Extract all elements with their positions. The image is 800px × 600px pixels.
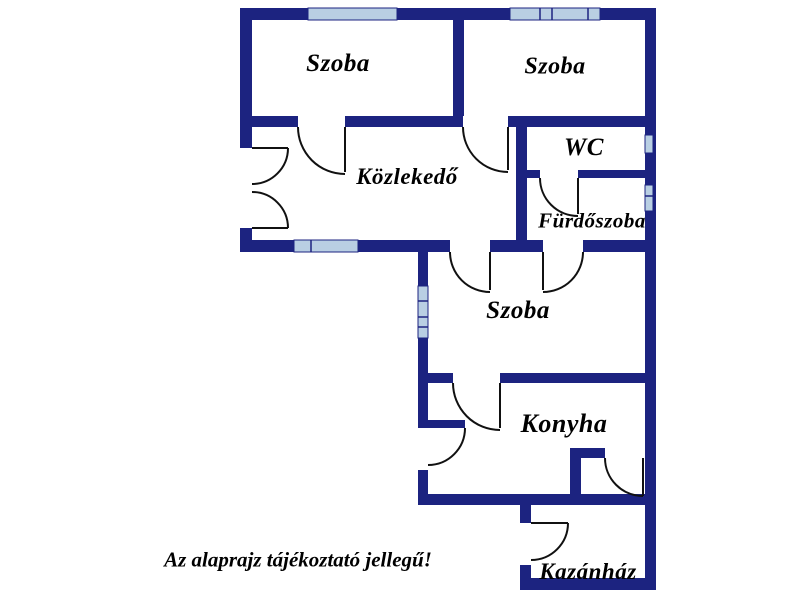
door-kitchen-to-pantry xyxy=(605,458,643,496)
disclaimer-text: Az alaprajz tájékoztató jellegű! xyxy=(164,548,432,573)
room-label-kozlekedo: Közlekedő xyxy=(356,164,458,190)
door-boiler-room xyxy=(531,523,568,560)
wall-midroom-bottom-1 xyxy=(418,373,453,383)
room-label-szoba-middle: Szoba xyxy=(486,297,550,325)
wall-hall-bottom-1 xyxy=(240,240,294,252)
wall-toprooms-bottom-2 xyxy=(345,116,463,127)
window-top-left-room xyxy=(308,8,397,20)
window-top-right-room xyxy=(510,8,600,20)
window-bathroom xyxy=(645,185,653,211)
wall-kitchen-left-1 xyxy=(418,383,428,428)
window-wc xyxy=(645,135,653,153)
wall-bath-bottom xyxy=(583,240,645,252)
wall-midroom-left-1 xyxy=(418,252,428,287)
wall-pantry-left xyxy=(570,448,581,494)
wall-wc-bottom-2 xyxy=(578,170,645,178)
room-label-szoba-top-right: Szoba xyxy=(524,54,585,81)
window-hallway xyxy=(294,240,358,252)
wall-wc-bottom-1 xyxy=(527,170,540,178)
room-label-kazanhaz: Kazánház xyxy=(539,559,636,585)
room-label-szoba-top-left: Szoba xyxy=(306,50,370,78)
room-label-konyha: Konyha xyxy=(521,409,608,439)
room-label-wc: WC xyxy=(564,134,604,162)
walls xyxy=(240,8,656,590)
window-middle-room xyxy=(418,286,428,338)
wall-kitchen-bottom xyxy=(418,494,656,505)
door-hall-to-middle-room xyxy=(450,252,490,292)
wall-toprooms-divider xyxy=(453,20,464,116)
wall-toprooms-bottom-3 xyxy=(508,116,656,127)
entrance-double-door xyxy=(252,148,288,228)
room-label-furdoszoba: Fürdőszoba xyxy=(538,209,646,234)
door-szoba-top-left xyxy=(298,127,345,174)
floorplan-page: Szoba Szoba WC Közlekedő Fürdőszoba Szob… xyxy=(0,0,800,600)
kitchen-side-door-leaf xyxy=(428,420,465,428)
wall-toprooms-bottom-1 xyxy=(240,116,298,127)
wall-hall-bottom-2 xyxy=(358,240,450,252)
door-szoba-top-right xyxy=(463,127,508,172)
floorplan-drawing xyxy=(0,0,800,600)
door-bathroom-to-middle-room xyxy=(543,252,583,292)
wall-wc-left xyxy=(516,127,527,252)
wall-midroom-bottom-2 xyxy=(500,373,656,383)
wall-boiler-left-1 xyxy=(520,505,531,523)
door-kitchen-side xyxy=(428,428,465,465)
